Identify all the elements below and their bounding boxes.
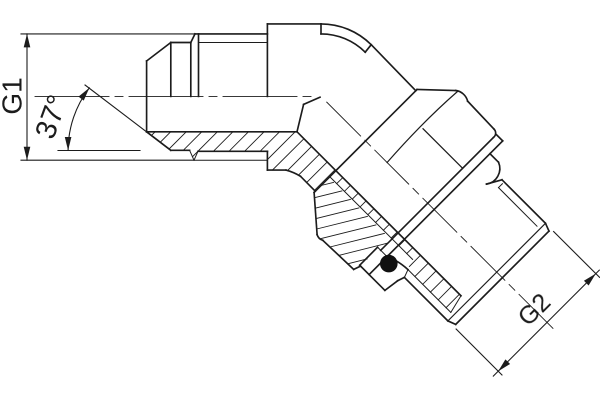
svg-text:G1: G1 (0, 77, 28, 114)
